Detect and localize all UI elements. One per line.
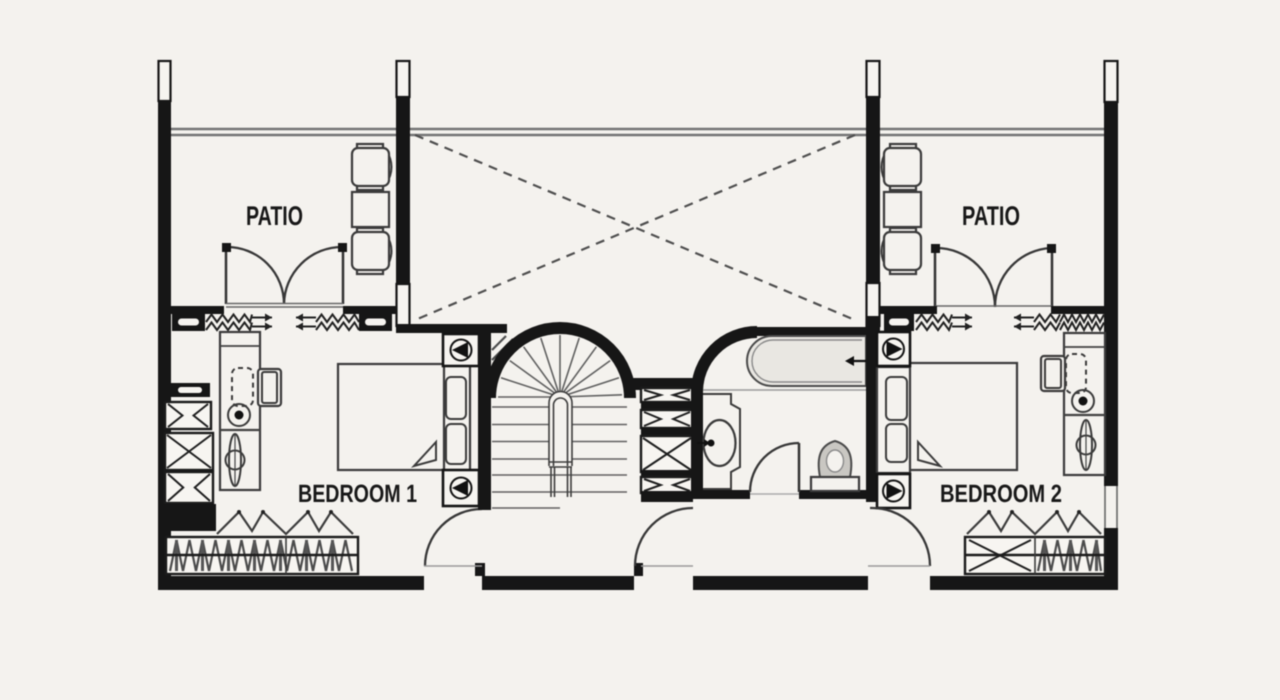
svg-text:BEDROOM 1: BEDROOM 1 <box>298 480 417 508</box>
svg-text:PATIO: PATIO <box>246 201 303 231</box>
svg-text:BEDROOM 2: BEDROOM 2 <box>940 480 1062 508</box>
svg-text:PATIO: PATIO <box>962 201 1020 231</box>
